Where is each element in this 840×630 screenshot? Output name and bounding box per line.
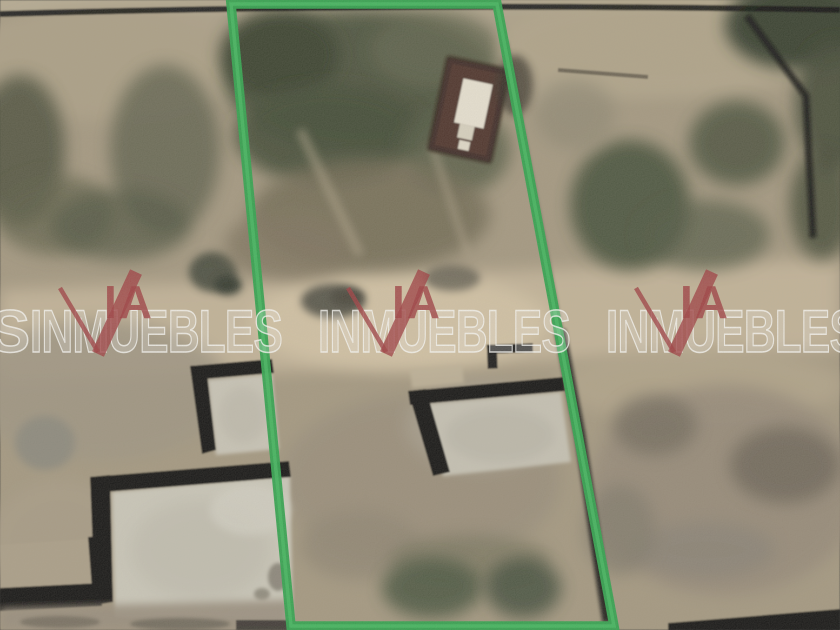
satellite-photo: S INMUEBLES IA INMUEBLES IA INMUEBLES IA	[0, 0, 840, 630]
photo-grain-overlay	[0, 0, 840, 630]
